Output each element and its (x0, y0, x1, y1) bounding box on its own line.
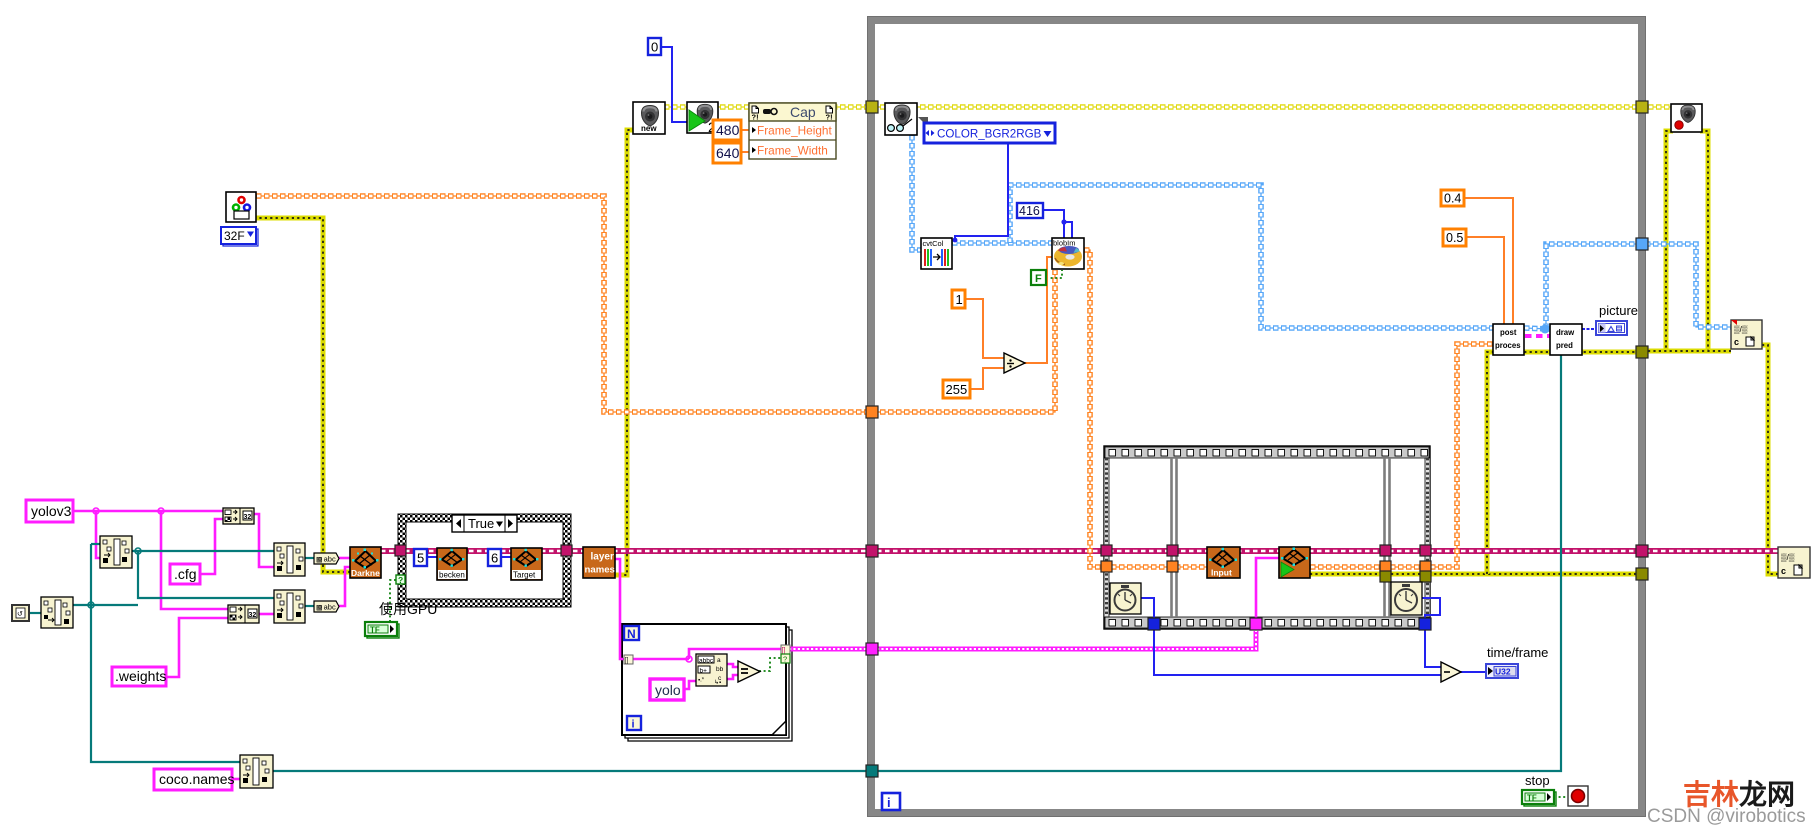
svg-text:使用GPU: 使用GPU (379, 601, 437, 617)
svg-text:stop: stop (1525, 773, 1550, 788)
svg-text:TF: TF (370, 626, 380, 635)
svg-text:draw: draw (1556, 328, 1575, 337)
svg-text:6: 6 (491, 551, 498, 566)
svg-text:a: a (717, 657, 721, 664)
svg-text:i: i (632, 719, 635, 731)
svg-text:▒/▒: ▒/▒ (1781, 553, 1795, 562)
svg-text:c: c (1781, 566, 1786, 576)
svg-text:layer: layer (591, 552, 614, 563)
svg-text:yolov3: yolov3 (31, 503, 72, 519)
svg-text:?: ? (398, 575, 403, 585)
svg-text:Frame_Width: Frame_Width (757, 144, 828, 158)
svg-text:COLOR_BGR2RGB: COLOR_BGR2RGB (937, 128, 1042, 141)
svg-text:1: 1 (956, 292, 963, 307)
svg-text:32: 32 (249, 612, 257, 619)
svg-text:▩abc: ▩abc (316, 555, 336, 564)
svg-text:[]: [] (625, 658, 629, 665)
svg-text:c: c (1734, 337, 1739, 347)
svg-text:?!: ?! (752, 113, 759, 122)
svg-text:new: new (641, 124, 657, 133)
svg-text:0: 0 (651, 40, 658, 55)
svg-text:?: ? (783, 655, 787, 664)
svg-text:b+: b+ (700, 668, 708, 675)
svg-text:time/frame: time/frame (1487, 645, 1548, 660)
svg-text:Cap: Cap (790, 104, 816, 120)
svg-text:.weights: .weights (115, 668, 166, 684)
svg-text:Target: Target (513, 571, 536, 580)
svg-text:480: 480 (716, 122, 740, 138)
svg-text:Darkne: Darkne (351, 568, 380, 578)
svg-text:↳▪: ↳▪ (714, 679, 721, 686)
svg-text:picture: picture (1599, 303, 1638, 318)
svg-text:0.4: 0.4 (1444, 192, 1461, 206)
svg-text:cvtCol: cvtCol (923, 239, 944, 248)
svg-text:0.5: 0.5 (1446, 231, 1463, 245)
svg-text:bb: bb (716, 666, 724, 673)
svg-text:▒/▒: ▒/▒ (1734, 325, 1748, 334)
svg-text:640: 640 (716, 145, 740, 161)
svg-text:Input: Input (1211, 568, 1232, 578)
svg-text:Frame_Height: Frame_Height (757, 124, 832, 138)
svg-text:32: 32 (244, 514, 252, 521)
svg-text:.cfg: .cfg (174, 566, 197, 582)
svg-text:5: 5 (417, 551, 424, 566)
svg-text:abbc: abbc (699, 658, 714, 665)
svg-text:32F: 32F (224, 229, 245, 243)
svg-text:i: i (887, 795, 891, 810)
svg-text:yolo: yolo (655, 682, 681, 698)
svg-text:becken: becken (439, 571, 465, 580)
svg-text:CSDN @virobotics: CSDN @virobotics (1647, 806, 1806, 827)
svg-text:TF: TF (1527, 794, 1537, 803)
svg-text:F: F (1035, 273, 1042, 285)
svg-text:pred: pred (1556, 341, 1573, 350)
svg-text:post: post (1500, 328, 1517, 337)
svg-text:▪.*: ▪.* (698, 678, 705, 684)
svg-text:U32: U32 (1495, 667, 1511, 677)
svg-text:255: 255 (946, 382, 968, 397)
svg-text:416: 416 (1019, 204, 1040, 218)
svg-text:names: names (585, 565, 615, 576)
svg-text:?!: ?! (826, 113, 833, 122)
svg-text:coco.names: coco.names (159, 771, 234, 787)
svg-text:True: True (468, 516, 494, 531)
svg-text:↺: ↺ (17, 611, 23, 618)
svg-text:proces: proces (1495, 341, 1521, 350)
svg-text:blobIm: blobIm (1053, 239, 1076, 248)
svg-text:▩abc: ▩abc (316, 603, 336, 612)
svg-text:N: N (627, 627, 636, 641)
